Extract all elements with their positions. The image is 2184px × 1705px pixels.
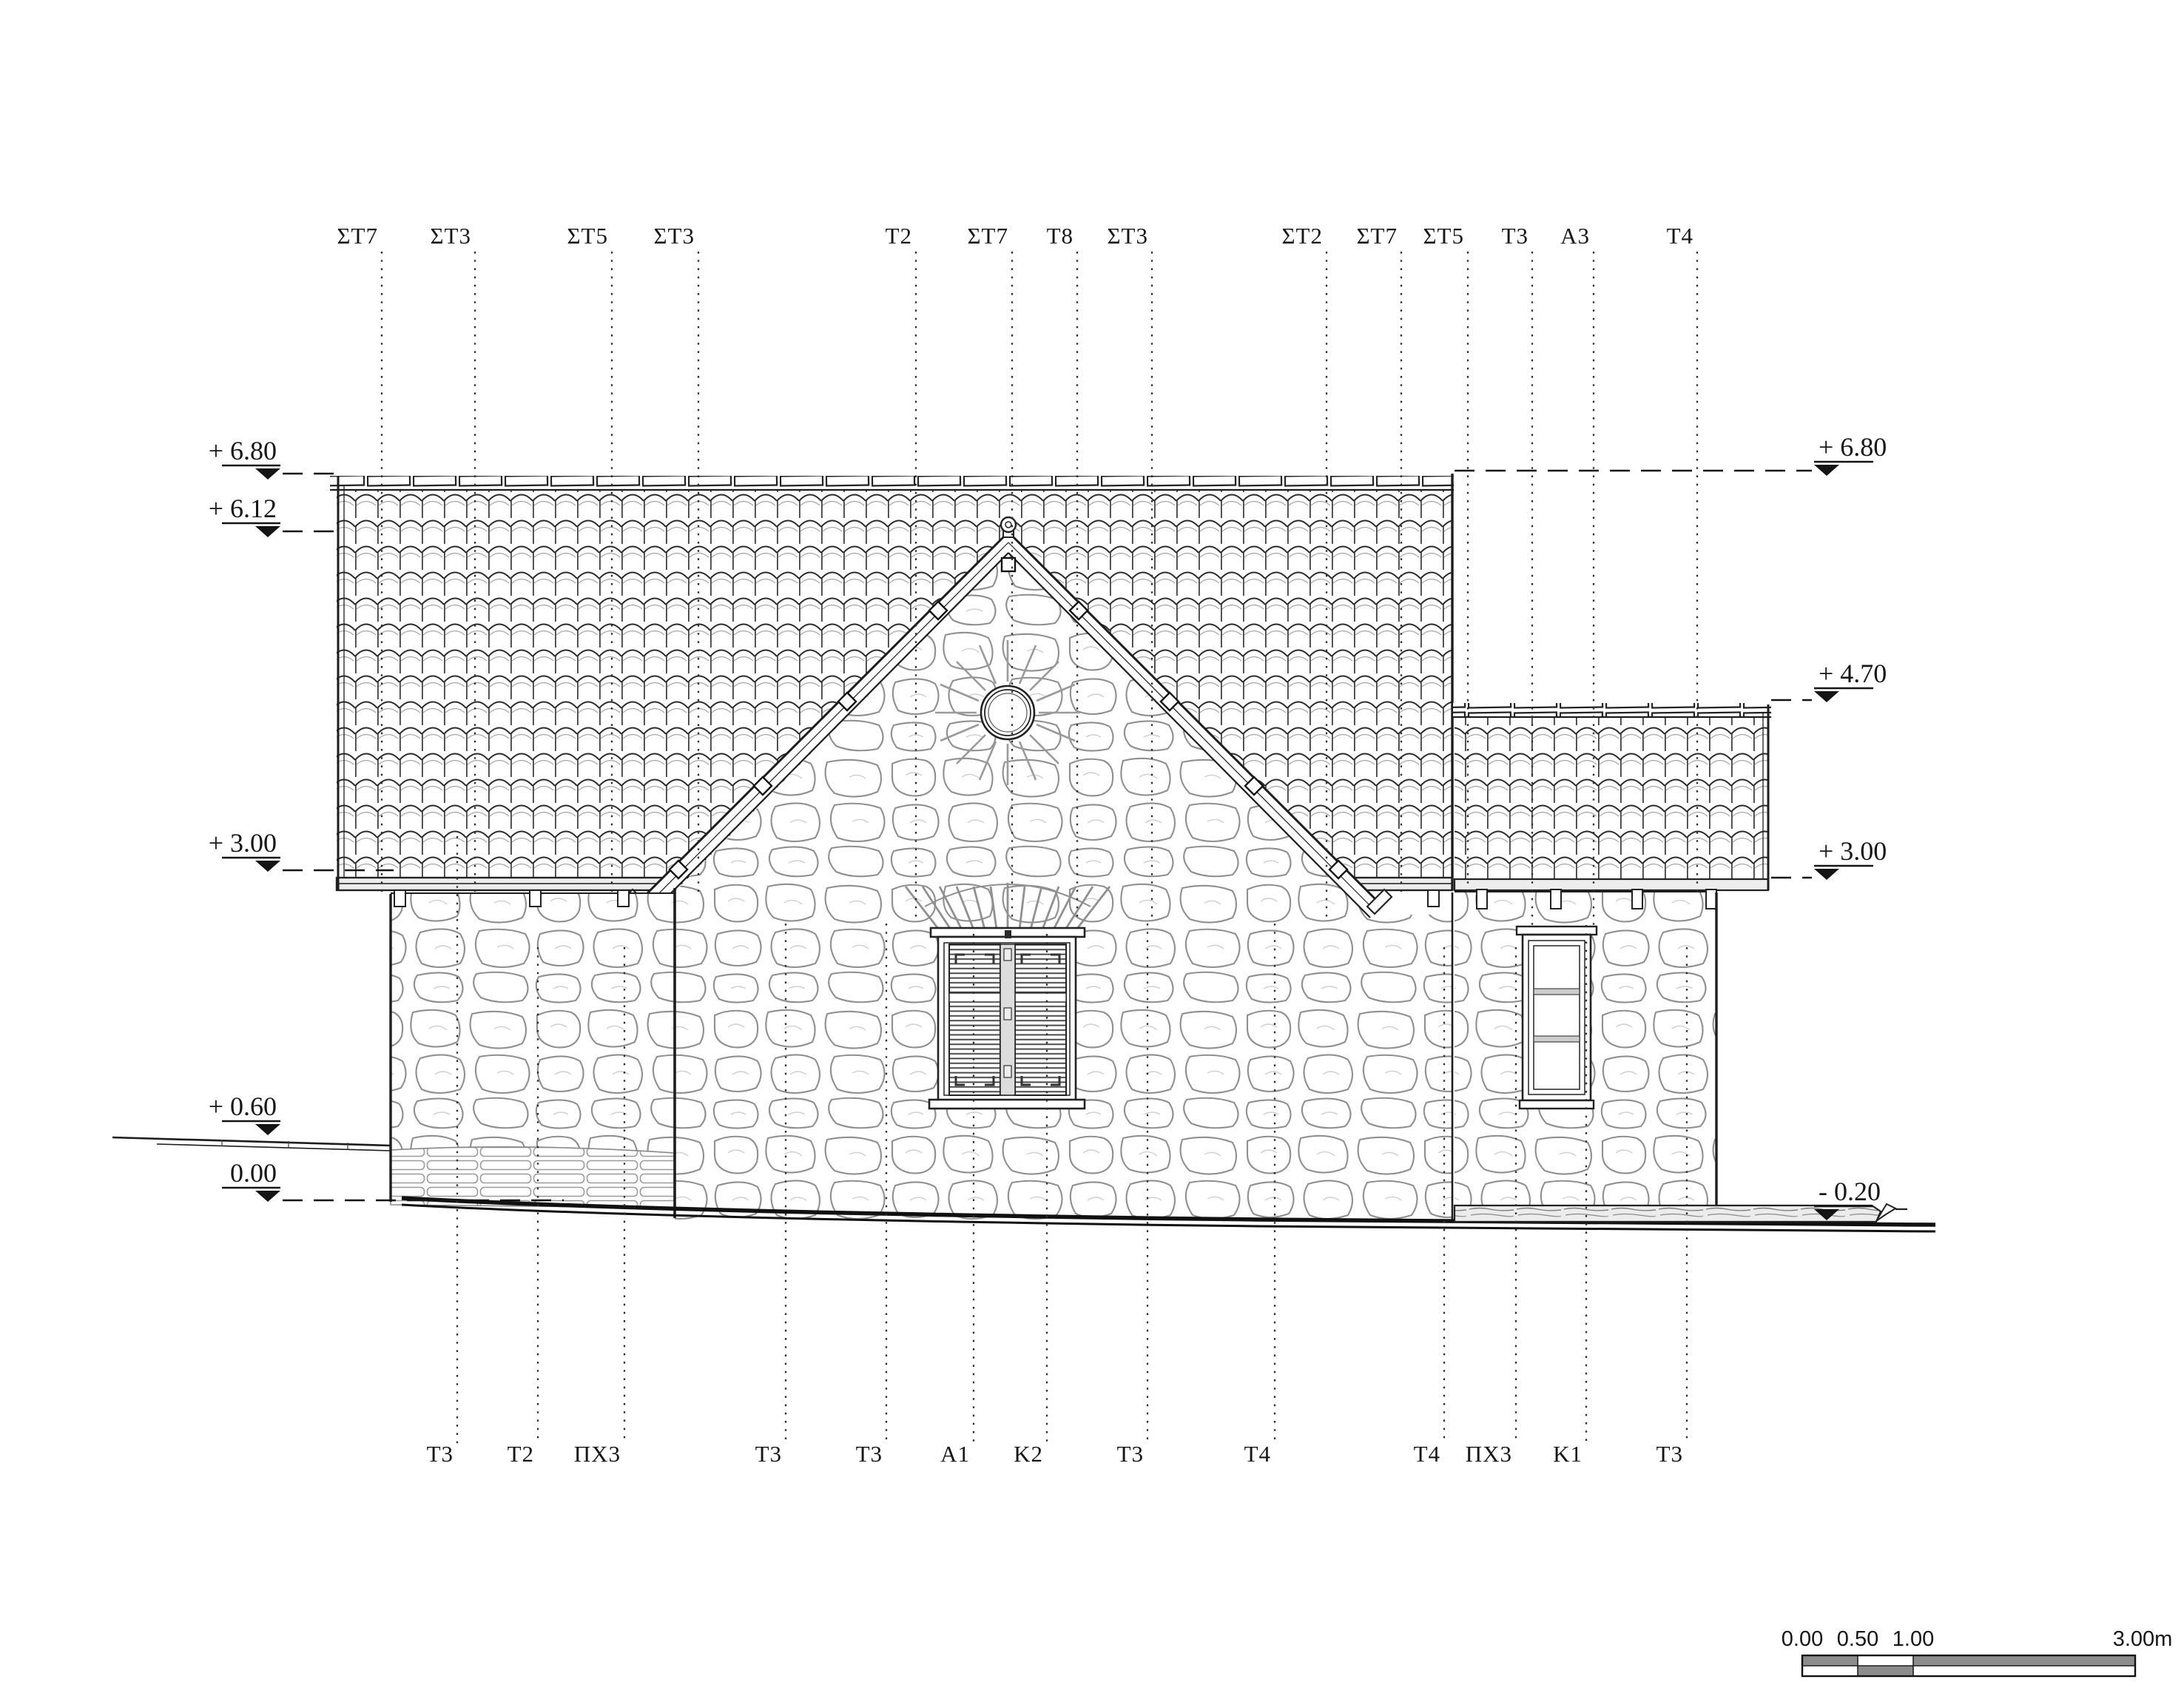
- left-wing-wall: [391, 893, 675, 1208]
- grid-label-top: ΣΤ7: [337, 223, 378, 249]
- grid-label-top: ΣΤ7: [968, 223, 1008, 249]
- grid-label-bottom: Τ2: [508, 1441, 534, 1467]
- grid-label-top: Α3: [1560, 223, 1590, 249]
- level-label-right: + 3.00: [1819, 836, 1887, 866]
- annex-window-glazing: [1534, 946, 1580, 1089]
- annex-roof: [1453, 703, 1771, 890]
- scale-tick-label: 1.00: [1893, 1627, 1934, 1651]
- grid-label-top: ΣΤ5: [1423, 223, 1464, 249]
- level-label-left: + 6.12: [209, 494, 277, 523]
- annex-window-sill: [1520, 1100, 1594, 1109]
- elevation-sheet: ΣΤ7 ΣΤ3 ΣΤ5 ΣΤ3 Τ2 ΣΤ7 Τ8 ΣΤ3 ΣΤ2 ΣΤ7 ΣΤ…: [0, 0, 2184, 1705]
- elevation-drawing: ΣΤ7 ΣΤ3 ΣΤ5 ΣΤ3 Τ2 ΣΤ7 Τ8 ΣΤ3 ΣΤ2 ΣΤ7 ΣΤ…: [0, 0, 2184, 1705]
- grid-label-bottom: Τ3: [427, 1441, 454, 1467]
- grid-label-bottom: Τ3: [755, 1441, 782, 1467]
- grid-label-bottom: Κ1: [1553, 1441, 1583, 1467]
- grid-label-bottom: Τ3: [1117, 1441, 1144, 1467]
- grid-label-top: ΣΤ3: [654, 223, 695, 249]
- stone-walkway: [1455, 1205, 1881, 1222]
- round-window: [935, 640, 1080, 785]
- grid-label-bottom: ΠΧ3: [574, 1441, 621, 1467]
- grid-label-bottom: Τ3: [1656, 1441, 1683, 1467]
- level-label-right: + 4.70: [1819, 659, 1887, 688]
- grid-label-bottom: Τ4: [1244, 1441, 1271, 1467]
- scale-end-label: 3.00m: [2113, 1627, 2173, 1651]
- scale-tick-label: 0.50: [1837, 1627, 1878, 1651]
- window-sill: [929, 1100, 1085, 1109]
- grid-label-bottom: Κ2: [1014, 1441, 1043, 1467]
- grid-label-top: ΣΤ5: [567, 223, 608, 249]
- annex-window-head: [1517, 927, 1597, 935]
- shutter-latch: [1005, 930, 1011, 938]
- level-label-left: + 3.00: [209, 828, 277, 858]
- grid-label-bottom: Α1: [940, 1441, 970, 1467]
- grid-label-top: ΣΤ3: [1108, 223, 1148, 249]
- grid-label-top: Τ8: [1047, 223, 1074, 249]
- level-label-left: + 0.60: [209, 1092, 277, 1121]
- shutter-right: [1015, 944, 1066, 1095]
- grid-label-top: Τ2: [886, 223, 912, 249]
- grid-label-top: ΣΤ7: [1357, 223, 1398, 249]
- grid-label-top: ΣΤ2: [1282, 223, 1323, 249]
- grid-label-top: Τ3: [1502, 223, 1529, 249]
- annex-window: [1517, 927, 1597, 1109]
- level-label-right: + 6.80: [1819, 432, 1887, 462]
- level-label-left: 0.00: [230, 1158, 277, 1188]
- grid-label-top: ΣΤ3: [431, 223, 471, 249]
- gable-finial: [1001, 517, 1016, 537]
- scale-tick-label: 0.00: [1782, 1627, 1823, 1651]
- grid-label-bottom: Τ4: [1414, 1441, 1440, 1467]
- shutter-left: [949, 944, 1000, 1095]
- grid-label-top: Τ4: [1667, 223, 1693, 249]
- level-label-right: - 0.20: [1819, 1177, 1881, 1206]
- grid-label-bottom: Τ3: [856, 1441, 883, 1467]
- level-label-left: + 6.80: [209, 436, 277, 465]
- grid-label-bottom: ΠΧ3: [1466, 1441, 1512, 1467]
